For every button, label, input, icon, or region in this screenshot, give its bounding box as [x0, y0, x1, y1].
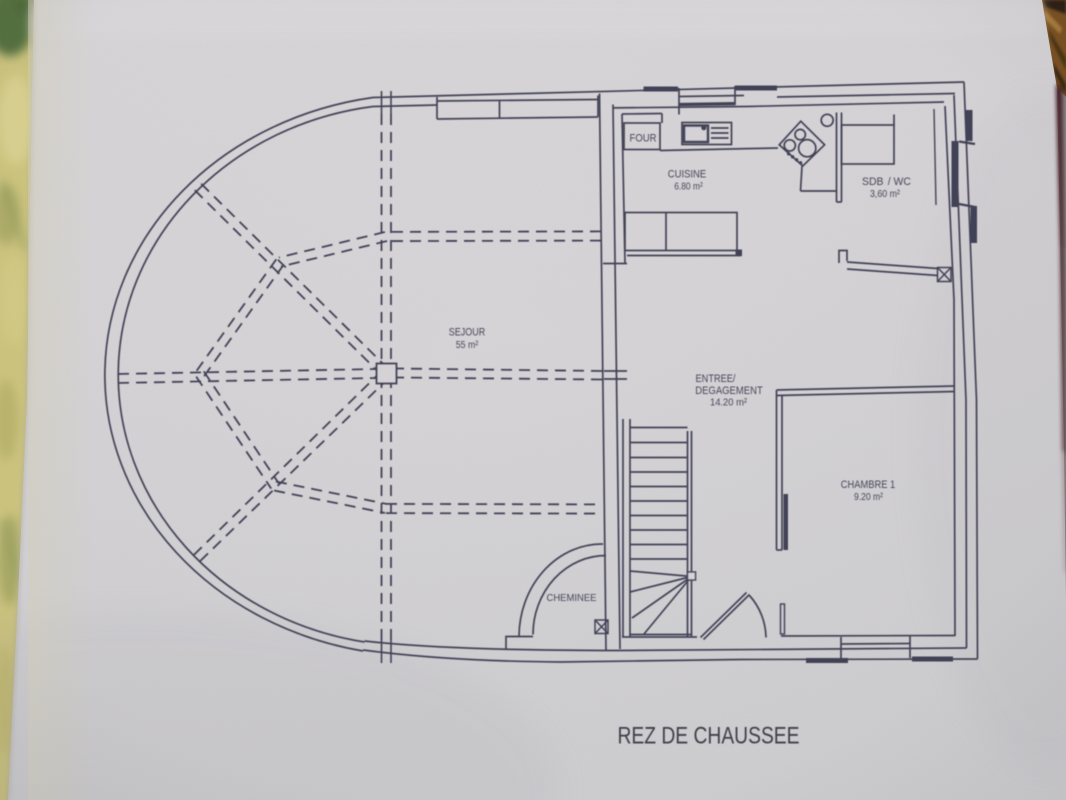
svg-text:REZ DE CHAUSSEE: REZ DE CHAUSSEE [618, 723, 800, 750]
svg-text:CUISINE: CUISINE [668, 169, 707, 181]
svg-text:FOUR: FOUR [630, 133, 657, 145]
svg-text:6.80 m²: 6.80 m² [674, 182, 703, 193]
svg-text:DEGAGEMENT: DEGAGEMENT [695, 385, 763, 397]
svg-text:CHAMBRE 1: CHAMBRE 1 [841, 479, 896, 491]
svg-text:SEJOUR: SEJOUR [449, 327, 486, 339]
svg-text:3,60 m²: 3,60 m² [870, 189, 901, 200]
svg-text:SDB / WC: SDB / WC [862, 176, 911, 188]
svg-text:14.20 m²: 14.20 m² [710, 398, 748, 409]
svg-text:55 m²: 55 m² [456, 340, 479, 351]
svg-text:CHEMINEE: CHEMINEE [547, 593, 597, 604]
svg-text:ENTREE/: ENTREE/ [696, 373, 736, 385]
svg-text:9.20 m²: 9.20 m² [854, 492, 884, 503]
